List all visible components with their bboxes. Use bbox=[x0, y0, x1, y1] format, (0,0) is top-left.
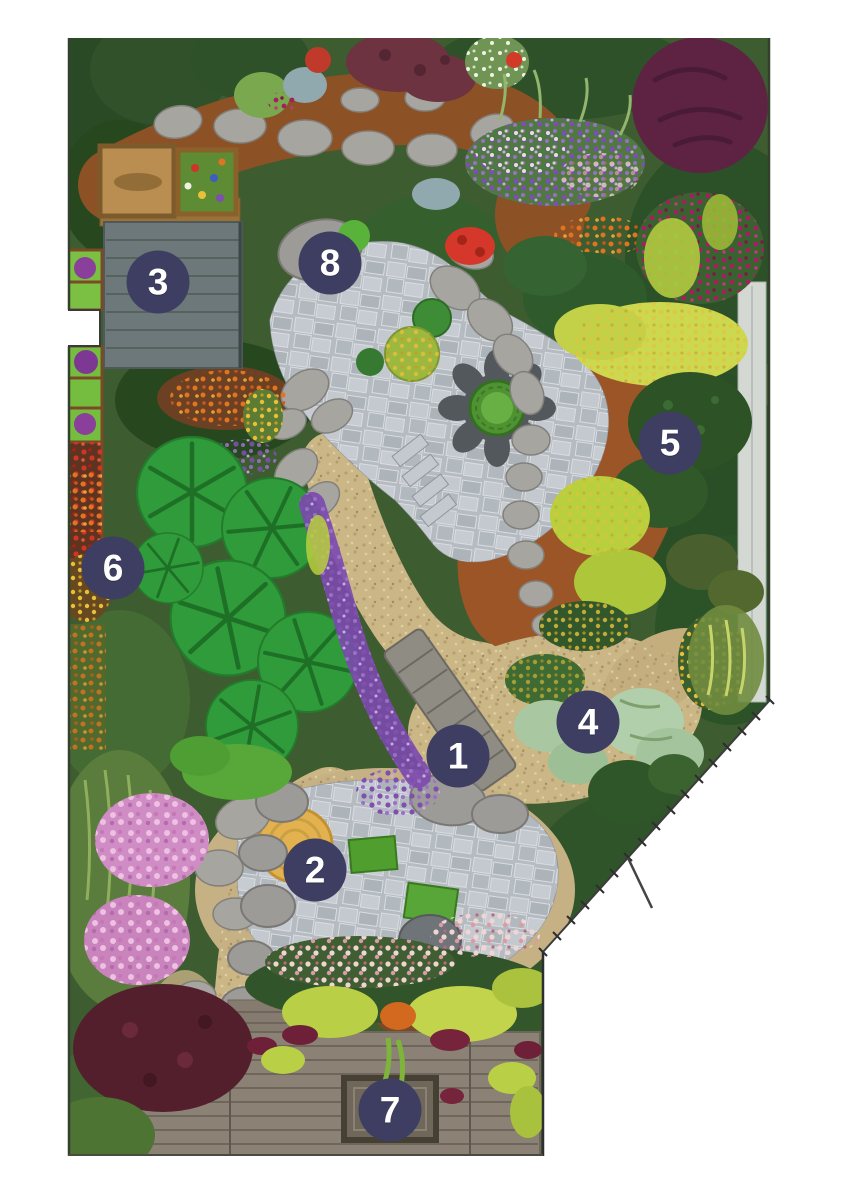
marker-badge-1[interactable]: 1 bbox=[427, 725, 490, 788]
marker-badge-6[interactable]: 6 bbox=[82, 537, 145, 600]
wine-tree bbox=[632, 37, 768, 173]
marker-badge-2[interactable]: 2 bbox=[284, 839, 347, 902]
planted-box bbox=[178, 150, 236, 214]
green-cushion bbox=[349, 836, 398, 873]
marker-number: 2 bbox=[305, 852, 326, 889]
page: 1 2 3 4 5 6 7 8 bbox=[0, 0, 850, 1200]
marker-badge-3[interactable]: 3 bbox=[127, 251, 190, 314]
marker-badge-5[interactable]: 5 bbox=[639, 412, 702, 475]
marker-badge-7[interactable]: 7 bbox=[359, 1079, 422, 1142]
marker-number: 1 bbox=[448, 738, 469, 775]
marker-number: 8 bbox=[320, 245, 341, 282]
marker-number: 6 bbox=[103, 550, 124, 587]
marker-number: 5 bbox=[660, 425, 681, 462]
marker-number: 3 bbox=[148, 264, 169, 301]
marker-number: 7 bbox=[380, 1092, 401, 1129]
marker-number: 4 bbox=[578, 704, 599, 741]
marker-badge-8[interactable]: 8 bbox=[299, 232, 362, 295]
garden-plan-illustration bbox=[0, 0, 850, 1200]
marker-badge-4[interactable]: 4 bbox=[557, 691, 620, 754]
survey-line bbox=[628, 858, 652, 908]
